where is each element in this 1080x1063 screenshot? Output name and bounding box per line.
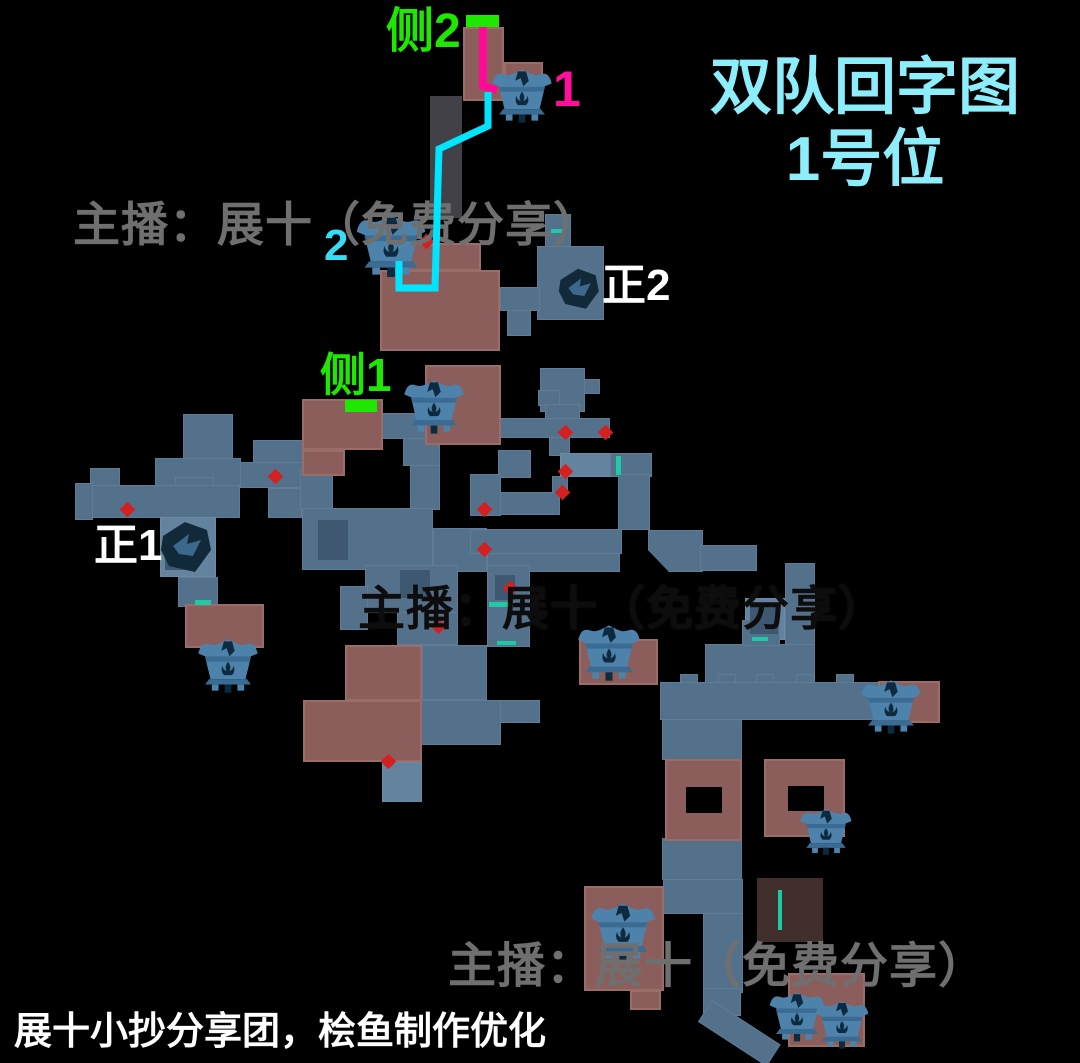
map-room	[302, 450, 345, 476]
watermark-bottom: 主播：展十（免费分享）	[448, 926, 987, 996]
map-room	[345, 645, 422, 701]
door-marker	[616, 456, 621, 475]
label-side-2: 侧2	[386, 8, 461, 56]
map-corridor	[318, 520, 348, 560]
map-corridor	[90, 468, 120, 486]
map-room	[303, 700, 422, 762]
map-corridor	[618, 474, 650, 530]
side2-start-marker	[466, 15, 499, 27]
label-chest-1: 1	[553, 64, 581, 114]
courtyard-hole	[686, 787, 722, 813]
map-corridor	[507, 310, 531, 336]
map-title-line2: 1号位	[690, 124, 1040, 196]
map-corridor	[718, 674, 736, 683]
spawn-icon-main1	[155, 515, 215, 577]
map-corridor	[500, 287, 540, 311]
treasure-chest-side1	[400, 377, 468, 435]
map-corridor	[584, 379, 600, 394]
credit-text: 展十小抄分享团，桧鱼制作优化	[14, 1000, 546, 1055]
map-corridor	[183, 414, 233, 460]
door-marker	[195, 600, 211, 605]
watermark-middle: 主播：展十（免费分享）	[358, 570, 886, 639]
game-map-canvas: 侧2 1 2 正2 侧1 正1 双队回字图 1号位 主播：展十（免费分享） 主播…	[0, 0, 1080, 1063]
spawn-icon-main2	[553, 264, 603, 312]
map-corridor	[421, 700, 501, 745]
map-corridor	[500, 492, 560, 515]
map-corridor	[662, 719, 742, 760]
label-chest-2: 2	[324, 224, 348, 268]
map-corridor	[756, 674, 774, 683]
door-marker	[497, 641, 516, 645]
treasure-chest-west	[192, 636, 264, 694]
map-corridor	[300, 470, 333, 510]
label-main-1: 正1	[94, 524, 162, 568]
map-corridor	[680, 674, 698, 683]
treasure-chest-courtyard	[797, 806, 855, 856]
side1-start-marker	[345, 400, 377, 412]
map-corridor	[662, 838, 742, 880]
map-corridor	[498, 450, 531, 478]
map-corridor	[410, 465, 440, 510]
map-corridor	[92, 485, 240, 518]
map-corridor	[663, 879, 743, 914]
treasure-chest-east	[850, 677, 932, 735]
treasure-chest-southeast-2	[812, 998, 872, 1050]
map-corridor	[75, 483, 93, 520]
map-title-line1: 双队回字图	[690, 52, 1040, 124]
map-corridor	[648, 530, 703, 572]
door-marker	[778, 890, 782, 930]
treasure-chest-1	[487, 66, 557, 124]
map-corridor	[700, 545, 757, 571]
map-room	[380, 270, 500, 351]
label-side-1: 侧1	[320, 352, 392, 398]
label-main-2: 正2	[602, 264, 670, 308]
map-corridor	[422, 645, 487, 700]
map-corridor	[268, 488, 302, 518]
map-corridor	[470, 529, 622, 554]
map-title: 双队回字图 1号位	[690, 52, 1040, 196]
map-corridor	[796, 674, 814, 683]
map-corridor	[500, 700, 540, 723]
